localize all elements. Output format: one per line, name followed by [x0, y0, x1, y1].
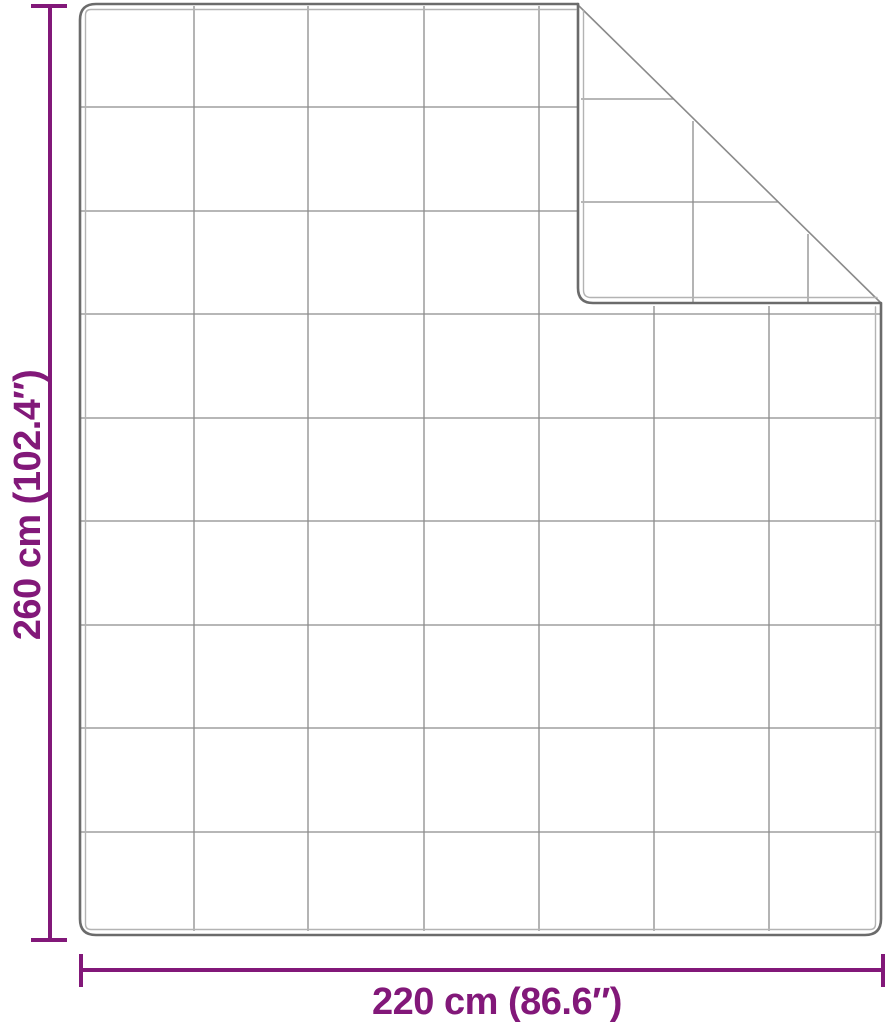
height-dimension-label: 260 cm (102.4″) [7, 370, 49, 641]
diagram-canvas: 260 cm (102.4″) 220 cm (86.6″) [0, 0, 887, 1024]
fold-line [578, 5, 881, 303]
height-dimension: 260 cm (102.4″) [7, 6, 67, 940]
flap-quilt-grid [581, 99, 808, 302]
quilt-grid [81, 6, 880, 931]
blanket-illustration [80, 4, 881, 935]
blanket-edge-outer [80, 4, 881, 935]
blanket-edge-inner [86, 10, 876, 930]
width-dimension: 220 cm (86.6″) [81, 954, 883, 1023]
width-dimension-label: 220 cm (86.6″) [372, 981, 622, 1023]
blanket-dimension-diagram: 260 cm (102.4″) 220 cm (86.6″) [0, 0, 887, 1024]
